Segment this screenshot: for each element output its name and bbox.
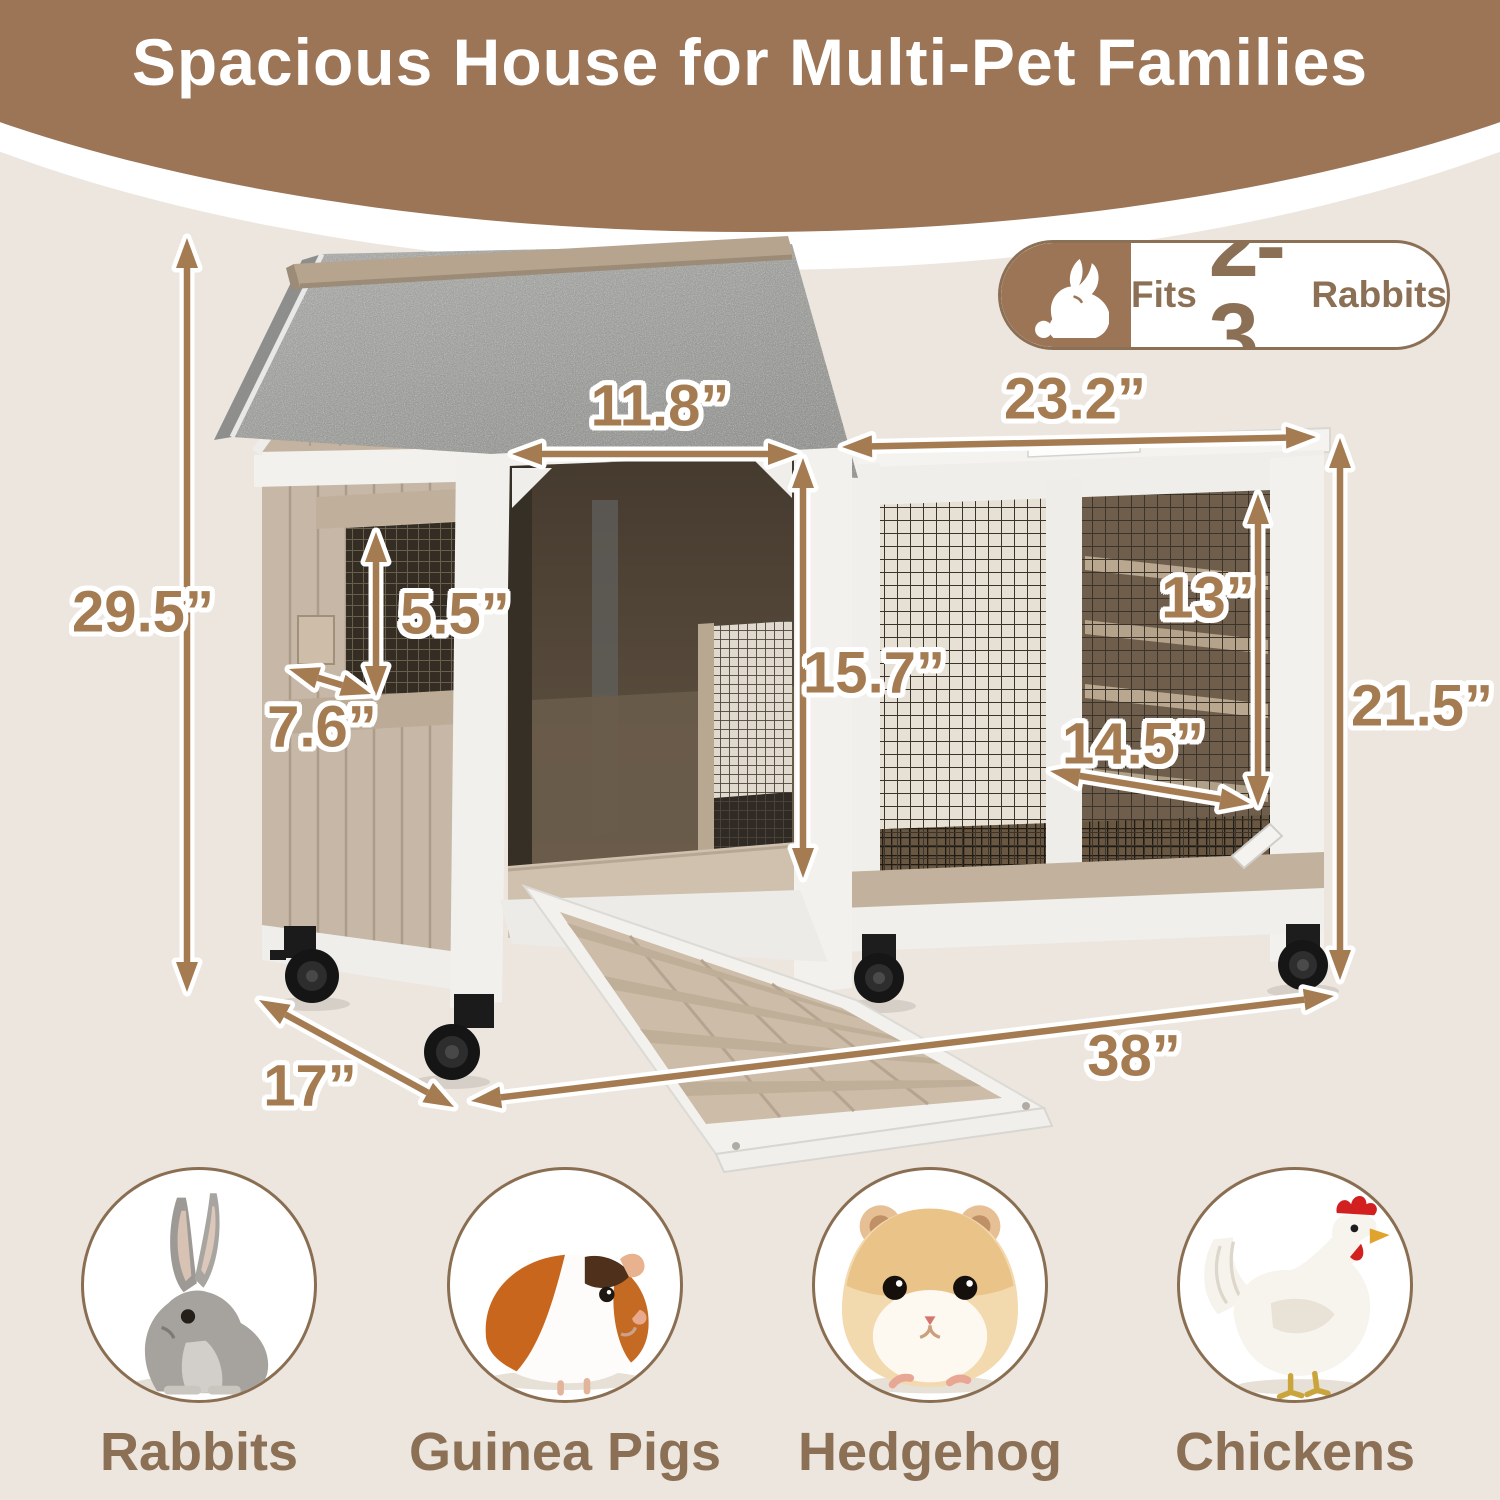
pet-card-chickens: Chickens (1115, 1167, 1475, 1483)
rabbit-photo (81, 1167, 317, 1403)
dim-depth: 17” (263, 1053, 357, 1120)
house-section (210, 230, 880, 1089)
dim-overall-width: 38” (1087, 1023, 1181, 1090)
pet-card-guinea-pigs: Guinea Pigs (385, 1167, 745, 1483)
run-mesh-door (1078, 470, 1274, 882)
product-infographic: Spacious House for Multi-Pet Families (0, 0, 1500, 1500)
dim-run-interior-height: 13” (1161, 565, 1255, 632)
fits-badge: Fits 2-3 Rabbits (998, 240, 1450, 350)
doorway (508, 455, 796, 938)
dim-window-height: 5.5” (400, 581, 510, 648)
badge-fits-label: Fits (1131, 274, 1197, 316)
pet-label-guinea-pigs: Guinea Pigs (409, 1421, 721, 1483)
dim-run-top-width: 23.2” (1004, 366, 1146, 433)
window-latch (298, 616, 334, 664)
dim-run-height: 21.5” (1351, 673, 1493, 740)
dim-door-width: 11.8” (591, 373, 730, 440)
dim-overall-height: 29.5” (72, 579, 214, 646)
pet-label-chickens: Chickens (1175, 1421, 1415, 1483)
badge-animal-label: Rabbits (1311, 274, 1447, 316)
pet-card-rabbits: Rabbits (19, 1167, 379, 1483)
pet-label-hedgehog: Hedgehog (798, 1421, 1062, 1483)
hamster-photo (812, 1167, 1048, 1403)
pet-label-rabbits: Rabbits (100, 1421, 298, 1483)
badge-count: 2-3 (1209, 240, 1300, 350)
dim-window-width: 7.6” (267, 694, 377, 761)
guinea-pig-photo (447, 1167, 683, 1403)
dim-door-height: 15.7” (803, 640, 945, 707)
pet-card-hedgehog: Hedgehog (750, 1167, 1110, 1483)
dim-run-door-width: 14.5” (1062, 711, 1204, 778)
rabbit-icon (1001, 243, 1131, 347)
chicken-photo (1177, 1167, 1413, 1403)
